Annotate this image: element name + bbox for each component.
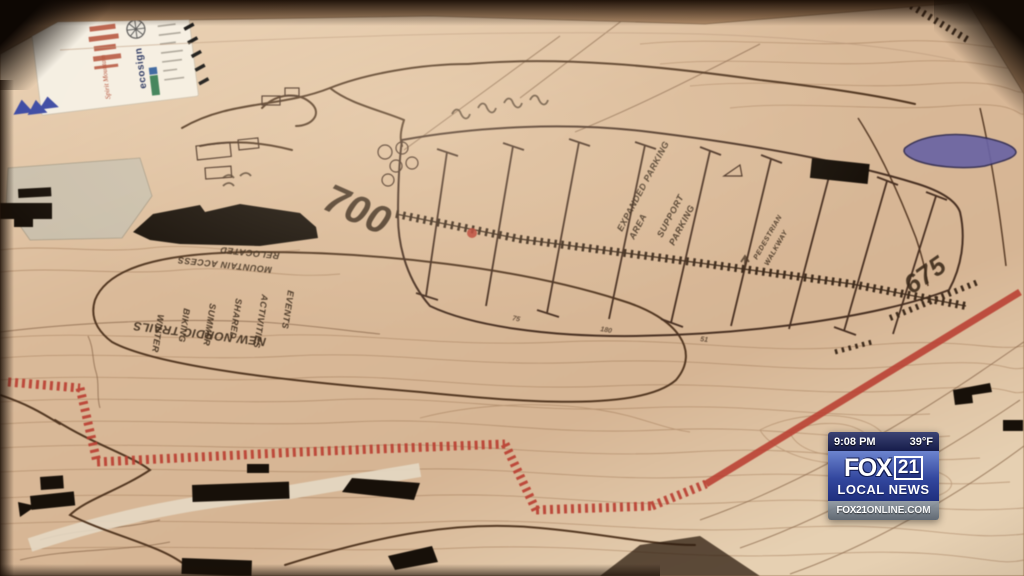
fox-logo-text: FOX bbox=[844, 456, 891, 481]
channel-number: 21 bbox=[894, 456, 923, 480]
time-label: 9:08 PM bbox=[834, 436, 876, 448]
website-bar: FOX21ONLINE.COM bbox=[828, 501, 939, 520]
badge-station-panel: FOX 21 LOCAL NEWS bbox=[828, 451, 939, 501]
ecosign-blue-bar bbox=[149, 67, 158, 75]
news-badge: 9:08 PM 39°F FOX 21 LOCAL NEWS FOX21ONLI… bbox=[828, 432, 939, 520]
row-count-3: 51 bbox=[700, 336, 709, 344]
news-frame-photo: 700 675 NEW NORDIC TRAILS RELOCATED MOUN… bbox=[0, 0, 1024, 576]
website-label-bold: FOX21 bbox=[836, 505, 866, 516]
red-marker-dot bbox=[467, 228, 477, 238]
station-logo: FOX 21 bbox=[844, 456, 923, 481]
badge-time-temp-bar: 9:08 PM 39°F bbox=[828, 432, 939, 451]
website-label-rest: ONLINE.COM bbox=[867, 505, 931, 516]
local-news-label: LOCAL NEWS bbox=[837, 482, 929, 497]
temperature-label: 39°F bbox=[910, 436, 933, 448]
